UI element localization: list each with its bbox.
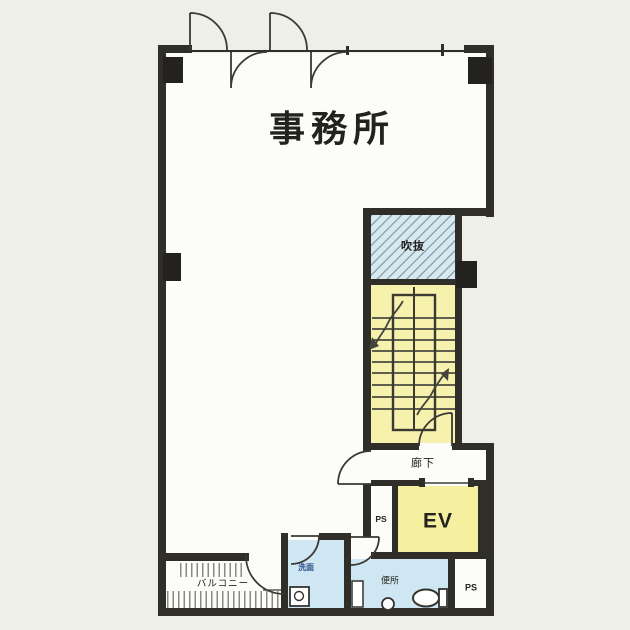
door-swing-icon [231, 52, 267, 88]
plan-linework [0, 0, 630, 630]
wall [392, 486, 398, 554]
toilet-room-label: 便所 [381, 577, 399, 586]
column [468, 57, 492, 84]
window-line [190, 50, 474, 52]
elevator-door-jamb [419, 478, 425, 487]
toilet-cabinet-icon [352, 581, 363, 607]
stair-arrow-head [441, 368, 449, 381]
toilet-bowl-icon [413, 590, 439, 607]
fixtures [290, 581, 447, 610]
stair-graphics [369, 287, 455, 430]
pipe-space-lower-label: PS [465, 584, 477, 593]
wall [363, 208, 463, 215]
balcony-door-swing-icon [246, 556, 284, 594]
door-swing-icon [270, 13, 307, 50]
wall [478, 486, 486, 554]
wall [344, 533, 351, 608]
corridor-door-swing-icon [338, 451, 371, 484]
pipe-space-upper-label: PS [375, 515, 386, 524]
sink-icon [290, 587, 309, 606]
toilet-tank-icon [439, 589, 447, 607]
washroom-door-swing-icon [291, 536, 319, 564]
void-room-label: 吹抜 [401, 242, 425, 253]
elevator-label: EV [423, 511, 453, 532]
column [163, 253, 181, 281]
wall [486, 443, 494, 616]
wall [371, 443, 419, 450]
wall [319, 533, 346, 540]
wall [363, 279, 463, 285]
stair-arrow-icon [375, 301, 403, 345]
toilet-door-swing-icon [351, 537, 379, 565]
washroom-label: 洗面 [298, 564, 314, 572]
wall [363, 484, 371, 537]
office-room-label: 事務所 [269, 111, 395, 147]
elevator-door-jamb [468, 478, 474, 487]
wall-tick [346, 46, 349, 55]
floor-plan: 事務所 吹抜 廊下 PS EV PS 便所 洗面 バルコニー [0, 0, 630, 630]
wall [281, 533, 288, 608]
wall [371, 480, 419, 486]
door-swing-icon [190, 13, 227, 50]
column [163, 57, 183, 83]
wall [471, 480, 494, 486]
elevator-door-icon [419, 478, 474, 487]
wall [363, 208, 371, 451]
hand-basin-icon [382, 598, 394, 610]
door-swing-icon [311, 52, 347, 88]
wall [455, 208, 462, 450]
structural-columns [163, 57, 492, 288]
corridor-label: 廊下 [411, 459, 435, 470]
wall [371, 552, 494, 559]
wall [158, 553, 249, 561]
wall [448, 559, 455, 608]
wall-tick [441, 44, 444, 56]
balcony-label: バルコニー [197, 579, 249, 589]
wall [158, 45, 166, 616]
wall [158, 608, 494, 616]
column [456, 261, 477, 288]
wall [452, 443, 494, 450]
